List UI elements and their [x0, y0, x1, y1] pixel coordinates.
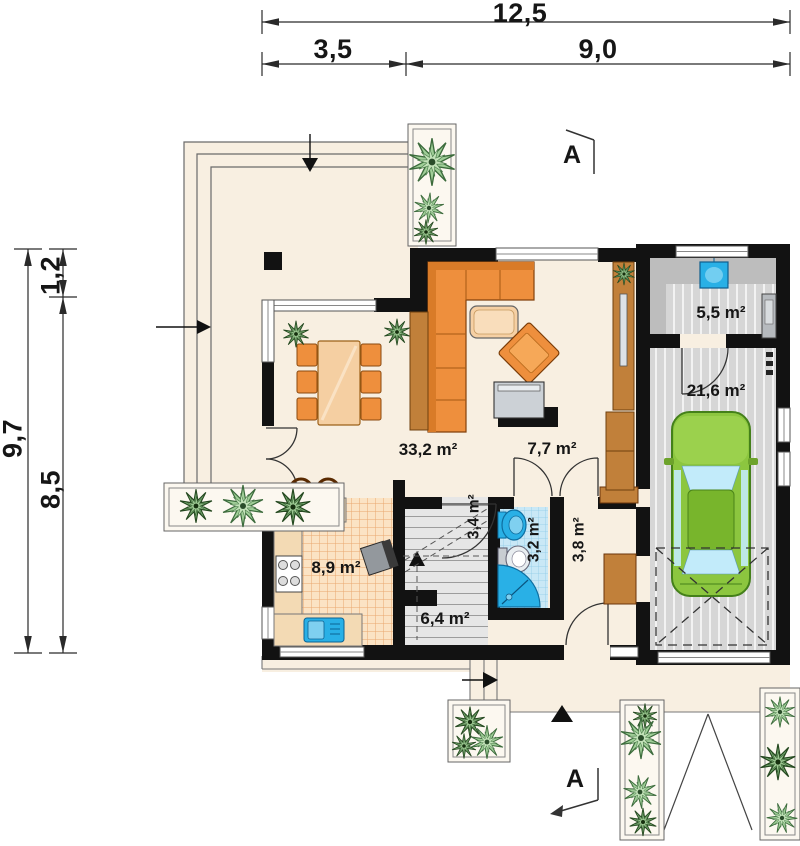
floor-plan-canvas: [0, 0, 800, 846]
utility-tank: [700, 258, 728, 288]
room-area-label-stairs: 6,4 m²: [400, 610, 490, 627]
dimension-label-side-total: 9,7: [0, 389, 27, 489]
dimension-label-side-lower: 8,5: [38, 440, 65, 540]
hall-cabinet: [606, 412, 634, 490]
room-area-label-corridor: 3,8 m²: [571, 500, 587, 580]
room-area-label-utility: 5,5 m²: [676, 304, 766, 321]
dimension-label-top-right: 9,0: [548, 36, 648, 63]
bathroom-sink: [498, 510, 526, 540]
room-area-label-understairs: 3,4 m²: [466, 477, 482, 557]
driveway: [664, 714, 752, 830]
room-area-label-living: 33,2 m²: [383, 441, 473, 458]
kitchen-sink: [304, 618, 344, 642]
section-marker-top: A: [552, 143, 592, 168]
room-area-label-garage: 21,6 m²: [671, 382, 761, 399]
section-marker-bottom: A: [555, 767, 595, 792]
floor-plan: 12,5 3,5 9,0 9,7 1,2 8,5 33,2 m² 7,7 m² …: [0, 0, 800, 846]
room-divider-panel: [410, 312, 428, 430]
dimension-label-top-total: 12,5: [470, 0, 570, 27]
dimension-label-side-upper: 1,2: [38, 226, 65, 326]
room-area-label-bathroom: 3,2 m²: [526, 500, 542, 580]
room-area-label-hall: 7,7 m²: [507, 440, 597, 457]
coffee-table: [470, 306, 518, 338]
tv-stand: [494, 382, 544, 418]
dimension-label-top-left: 3,5: [283, 36, 383, 63]
dining-table: [297, 341, 381, 425]
room-area-label-kitchen: 8,9 m²: [291, 559, 381, 576]
